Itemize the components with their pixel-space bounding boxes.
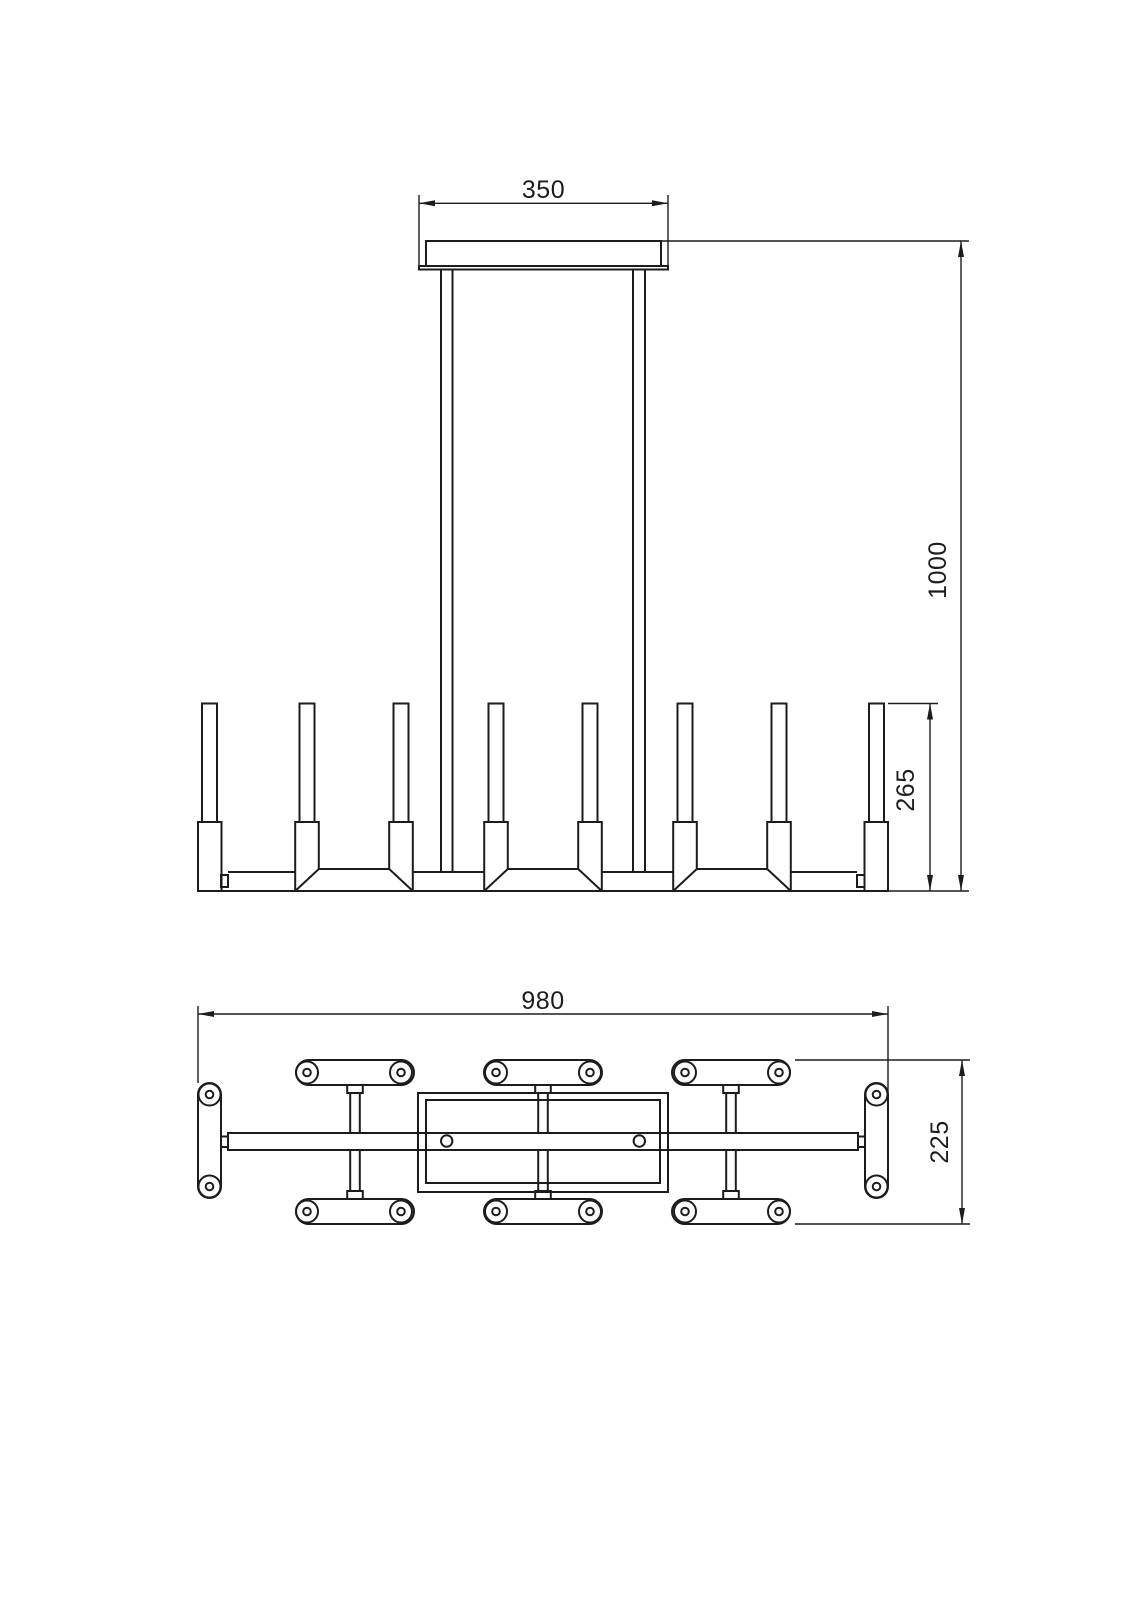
- arrow-left: [198, 1011, 214, 1017]
- canopy: [419, 241, 668, 270]
- crossbar-1: [347, 1085, 363, 1199]
- dimension-drop-height: 1000: [661, 241, 969, 891]
- arrow-right: [652, 200, 668, 206]
- candle-front-5: [578, 704, 602, 892]
- arrow-bottom: [959, 1208, 965, 1224]
- candle-front-6: [673, 704, 697, 892]
- crossbar-3: [723, 1085, 739, 1199]
- arm-bar-bottom-1: [296, 1199, 414, 1224]
- dim-label-1000: 1000: [924, 541, 952, 599]
- arm-bar-bottom-2: [484, 1199, 602, 1224]
- end-plate-right: [865, 1083, 888, 1198]
- front-elevation-view: 350 1000 265: [198, 176, 969, 891]
- arrow-top: [958, 241, 964, 257]
- dim-label-350: 350: [522, 176, 565, 204]
- arrow-bottom: [958, 875, 964, 891]
- drawing-sheet: 350 1000 265: [0, 0, 1131, 1600]
- candle-front-8: [865, 704, 889, 892]
- dimension-lamp-height: 265: [888, 704, 969, 892]
- suspension-rod-left: [441, 270, 453, 872]
- dimension-overall-length: 980: [198, 987, 888, 1092]
- suspension-rod-right: [633, 270, 645, 872]
- candle-front-3: [389, 704, 413, 892]
- arrow-right: [872, 1011, 888, 1017]
- dim-label-980: 980: [521, 987, 564, 1015]
- canopy-outline: [418, 1093, 668, 1192]
- arm-bar-top-3: [672, 1060, 790, 1085]
- arm-bar-top-1: [296, 1060, 414, 1085]
- top-plan-view: 980 225: [198, 987, 970, 1224]
- arrow-left: [419, 200, 435, 206]
- rod-hole-left: [441, 1135, 452, 1146]
- canopy-plate: [419, 266, 668, 270]
- crossbar-2: [535, 1085, 551, 1199]
- spine-stub-left: [221, 1137, 228, 1148]
- rod-hole-right: [634, 1135, 645, 1146]
- spine-bar: [228, 1133, 858, 1150]
- arrow-top: [927, 704, 933, 720]
- dimension-canopy-width: 350: [419, 176, 668, 269]
- arm-bar-bottom-3: [672, 1199, 790, 1224]
- dim-label-225: 225: [926, 1120, 954, 1163]
- arm-bar-top-2: [484, 1060, 602, 1085]
- candle-front-1: [198, 704, 222, 892]
- arm-assembly: [198, 869, 888, 891]
- candle-front-7: [767, 704, 791, 892]
- canopy-box: [426, 241, 661, 266]
- dim-label-265: 265: [892, 768, 920, 811]
- arrow-bottom: [927, 875, 933, 891]
- chandelier-technical-drawing: 350 1000 265: [0, 0, 1131, 1600]
- arrow-top: [959, 1060, 965, 1076]
- candle-front-4: [484, 704, 508, 892]
- spine-stub-right: [858, 1137, 865, 1148]
- candle-front-2: [295, 704, 319, 892]
- end-plate-left: [198, 1083, 221, 1198]
- end-stub-right: [857, 875, 865, 887]
